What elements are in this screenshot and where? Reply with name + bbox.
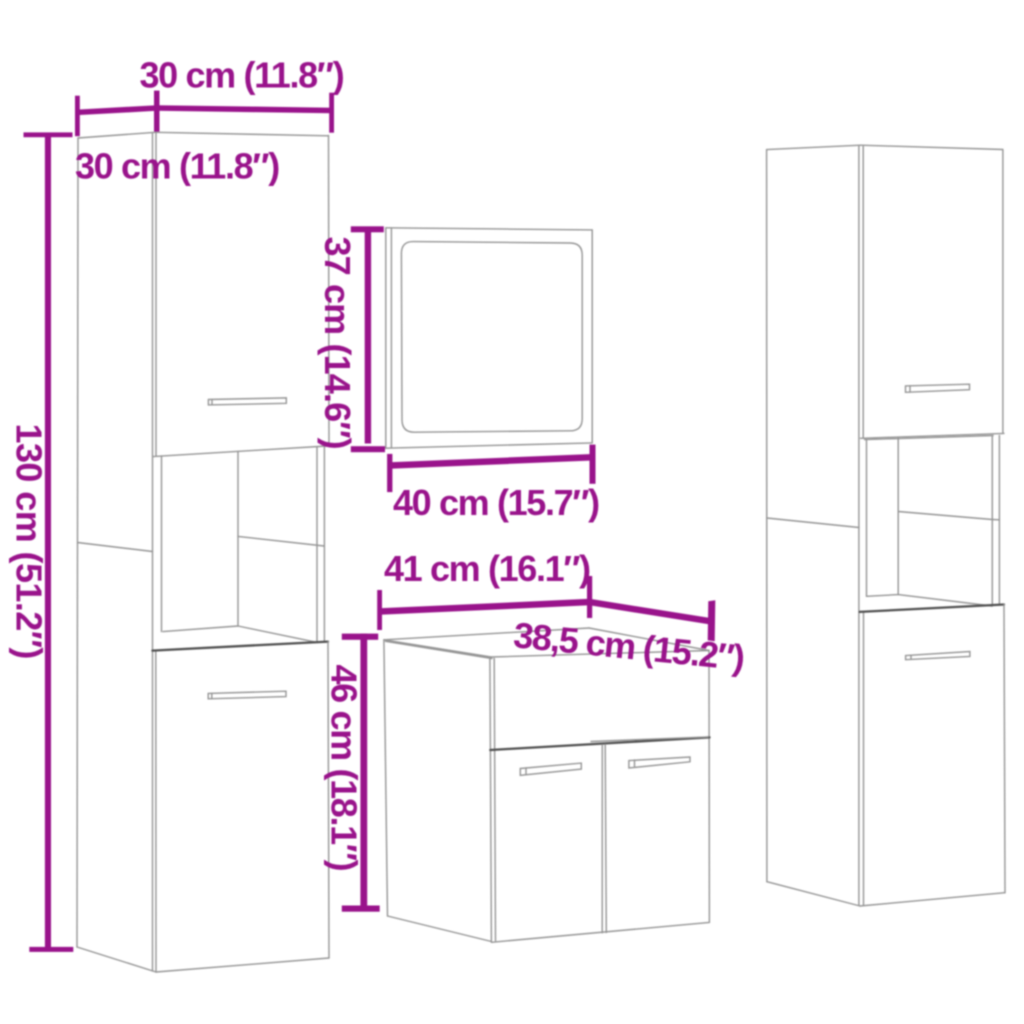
svg-text:41 cm (16.1″): 41 cm (16.1″) bbox=[384, 548, 590, 589]
svg-text:130 cm (51.2″): 130 cm (51.2″) bbox=[9, 424, 50, 659]
svg-text:37 cm (14.6″): 37 cm (14.6″) bbox=[317, 237, 358, 449]
svg-text:46 cm (18.1″): 46 cm (18.1″) bbox=[324, 665, 365, 871]
svg-text:40 cm (15.7″): 40 cm (15.7″) bbox=[393, 482, 599, 523]
svg-text:30 cm (11.8″): 30 cm (11.8″) bbox=[75, 145, 279, 186]
svg-text:30 cm (11.8″): 30 cm (11.8″) bbox=[140, 55, 344, 96]
